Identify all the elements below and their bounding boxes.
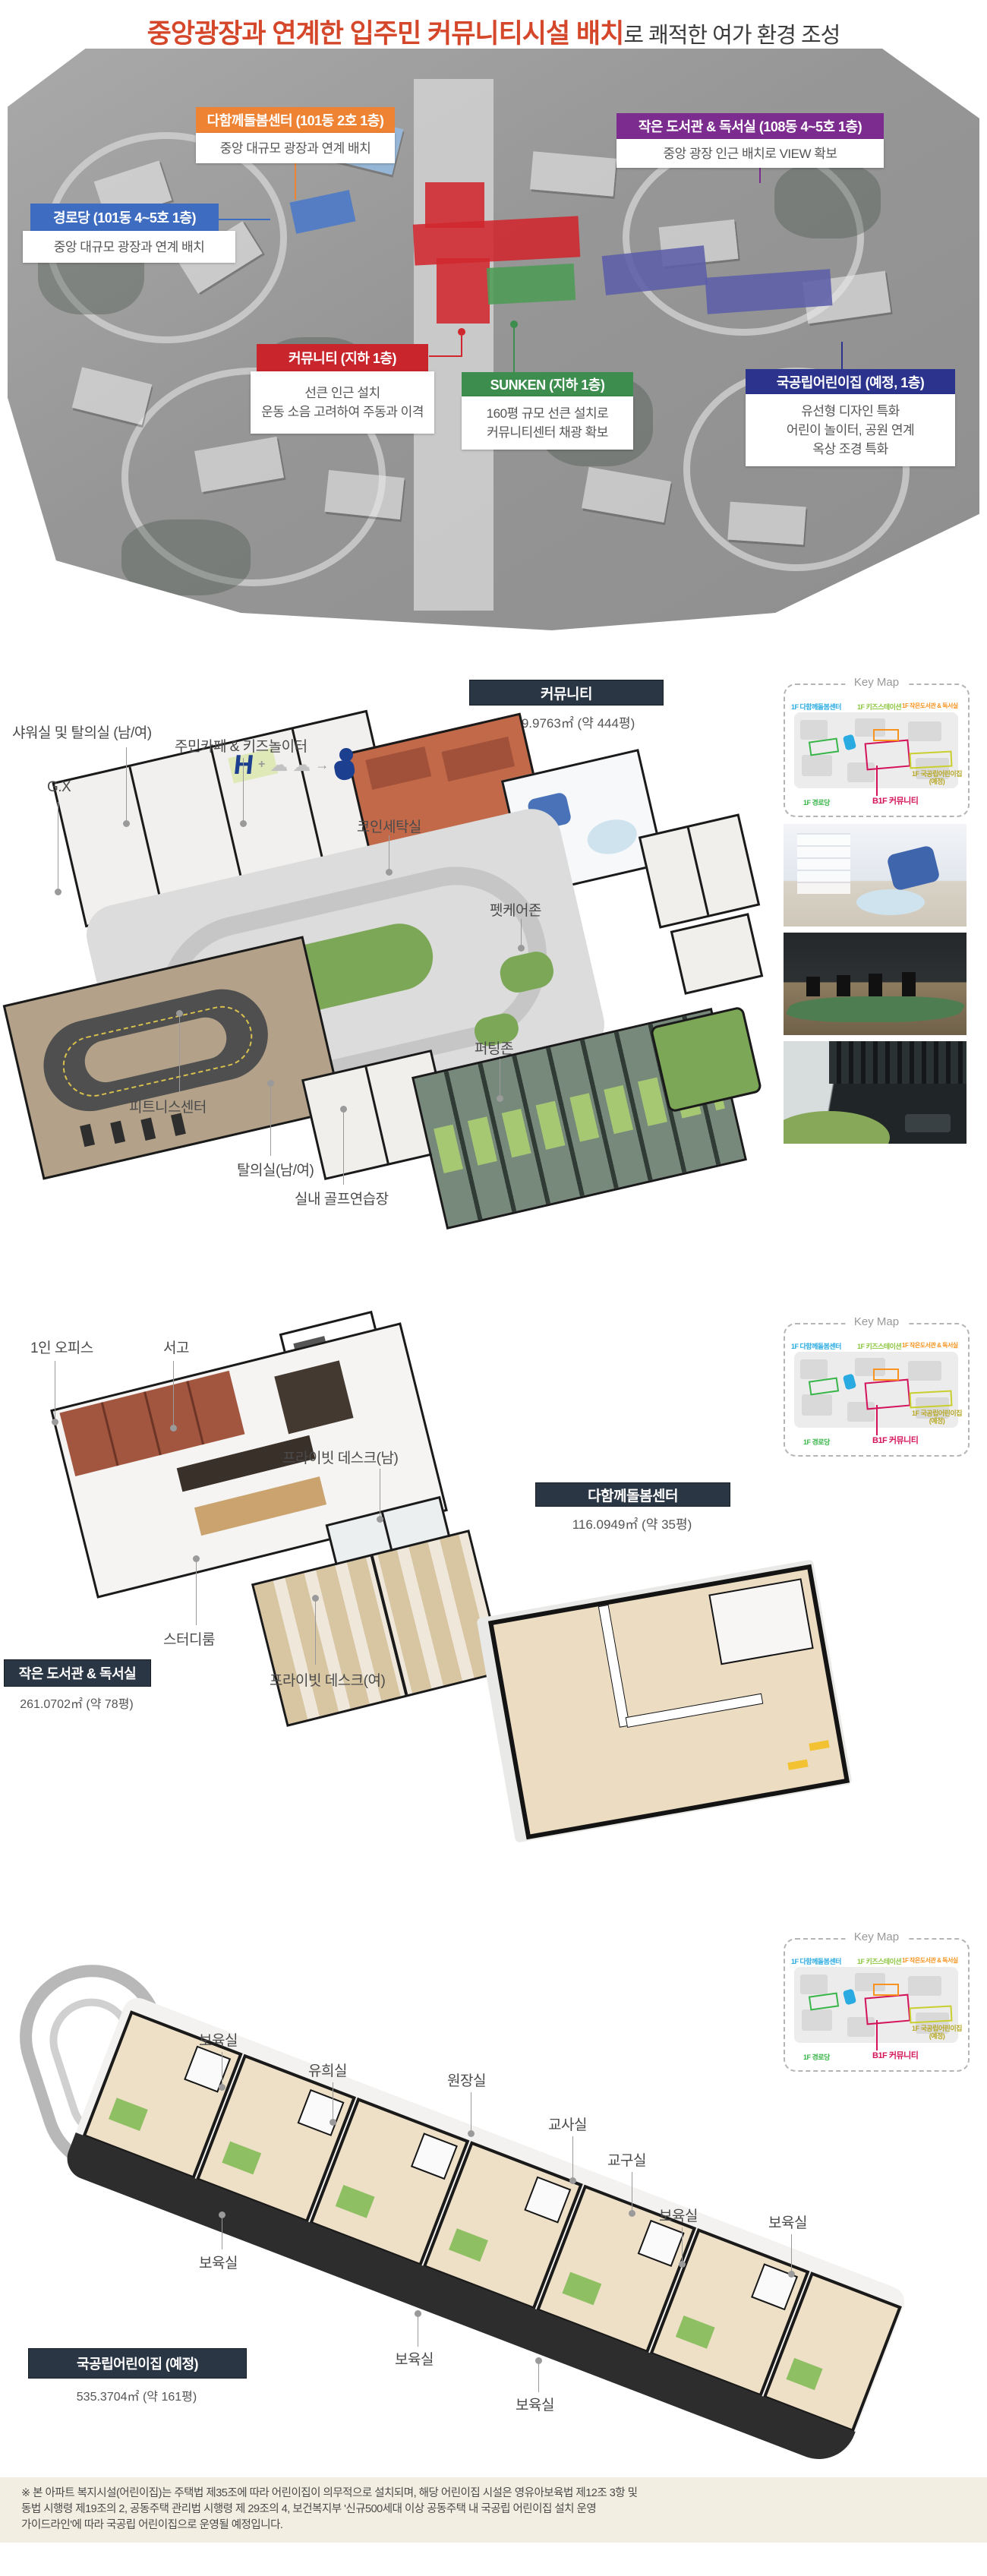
daycare-section-title: 국공립어린이집 (예정) — [28, 2348, 247, 2379]
callout-desc-line: 유선형 디자인 특화 — [801, 402, 900, 421]
connector-line — [295, 163, 296, 200]
leader-line — [471, 2092, 471, 2133]
footnote: ※ 본 아파트 복지시설(어린이집)는 주택법 제35조에 따라 어린이집이 의… — [0, 2477, 987, 2543]
photo-kids-playroom — [784, 824, 967, 927]
room-label: 실내 골프연습장 — [295, 1188, 389, 1208]
photo-indoor-golf — [784, 1041, 967, 1144]
room-label: 1인 오피스 — [30, 1337, 93, 1357]
wall-shape — [598, 1605, 630, 1728]
fitness-room-shape — [3, 936, 344, 1179]
table-shape — [194, 1476, 326, 1536]
keymap-label: B1F 커뮤니티 — [872, 794, 918, 807]
community-outline-shape — [865, 1379, 911, 1410]
leader-line — [55, 1361, 55, 1422]
leader-dot — [240, 820, 247, 827]
room-label: 서고 — [163, 1337, 189, 1357]
mat-shape — [562, 2272, 601, 2306]
callout-dolbom-desc: 중앙 대규모 광장과 연계 배치 — [196, 133, 395, 163]
building-shape — [582, 467, 671, 522]
room-label: 유희실 — [308, 2060, 347, 2080]
trees-shape — [774, 163, 881, 238]
wc-shape — [298, 2089, 345, 2136]
callout-sunken-desc: 160평 규모 선큰 설치로 커뮤니티센터 채광 확보 — [462, 396, 633, 450]
wall-shape — [364, 1067, 389, 1163]
care-center-area-text: 116.0949㎡ (약 35평) — [535, 1514, 729, 1533]
ceiling-slats-shape — [829, 1041, 967, 1084]
connector-line — [841, 342, 843, 369]
community-section-title: 커뮤니티 — [469, 680, 664, 706]
equipment-shape — [837, 975, 850, 996]
senior-outline-shape — [809, 737, 839, 756]
care-center-section-title: 다함께돌봄센터 — [535, 1482, 730, 1507]
wall-shape — [101, 1402, 119, 1466]
wc-shape — [638, 2220, 685, 2267]
keymap-leader-line — [876, 1405, 878, 1435]
keymap-label: 1F 국공립어린이집 (예정) — [909, 770, 965, 785]
room-label: 퍼팅존 — [475, 1037, 513, 1058]
room-label: 코인세탁실 — [357, 816, 421, 836]
keymap-label: 1F 키즈스테이션 — [857, 702, 901, 712]
mascot-character-icon — [333, 748, 356, 781]
keymap-label: 1F 다함께돌봄센터 — [791, 702, 841, 712]
keymap-title: Key Map — [845, 1315, 908, 1328]
keymap-label: 1F 작은도서관 & 독서실 — [902, 702, 958, 710]
leader-line — [222, 2218, 222, 2249]
leader-dot — [377, 1516, 383, 1523]
care-center-floorplan-illustration — [471, 1545, 858, 1845]
green-hill-shape — [784, 1111, 890, 1144]
page-root: 중앙광장과 연계한 입주민 커뮤니티시설 배치로 쾌적한 여가 환경 조성 — [0, 0, 987, 2576]
page-title: 중앙광장과 연계한 입주민 커뮤니티시설 배치로 쾌적한 여가 환경 조성 — [0, 12, 987, 51]
senior-highlight-shape — [290, 190, 356, 234]
room-label: G.X — [47, 779, 71, 796]
mat-shape — [449, 2228, 488, 2262]
shelf-shape — [441, 737, 515, 781]
library-outline-shape — [873, 1368, 899, 1381]
pool-shape — [584, 815, 640, 859]
building-shape — [727, 502, 806, 545]
leader-line — [682, 2227, 683, 2264]
library-area-text: 261.0702㎡ (약 78평) — [4, 1694, 150, 1712]
petcare-room-shape — [670, 913, 764, 995]
wc-shape — [411, 2132, 458, 2180]
wall-shape — [687, 828, 709, 916]
mat-shape — [786, 2358, 822, 2390]
room-label: 보육실 — [768, 2211, 807, 2232]
yellow-post-shape — [809, 1740, 829, 1750]
callout-desc-line: 중앙 대규모 광장과 연계 배치 — [54, 238, 205, 257]
leader-line — [389, 835, 389, 872]
mat-shape — [336, 2185, 375, 2218]
callout-library-desc: 중앙 광장 인근 배치로 VIEW 확보 — [616, 139, 884, 168]
community-highlight-shape — [437, 258, 490, 324]
cloud-icon: ☁ — [270, 754, 288, 776]
room-label: 교사실 — [548, 2114, 587, 2134]
keymap-label: 1F 경로당 — [803, 1437, 830, 1447]
callout-daycare-title: 국공립어린이집 (예정, 1층) — [746, 369, 955, 394]
shape — [800, 1359, 828, 1379]
keymap-label: 1F 키즈스테이션 — [857, 1341, 901, 1351]
equipment-shape — [140, 1118, 156, 1141]
shelf-shape — [365, 747, 431, 790]
leader-line — [243, 758, 244, 822]
connector-line — [219, 219, 270, 220]
leader-dot — [330, 2119, 336, 2126]
senior-outline-shape — [809, 1377, 839, 1395]
daycare-outline-shape — [909, 1391, 952, 1409]
room-label: 보육실 — [659, 2205, 698, 2225]
footnote-line: 가이드라인'에 따라 국공립 어린이집으로 운영될 예정입니다. — [21, 2518, 987, 2533]
wall-shape — [128, 767, 163, 908]
shape — [908, 721, 941, 741]
dolbom-outline-shape — [843, 1374, 856, 1391]
room-label: 보육실 — [395, 2348, 434, 2369]
room-label: 샤워실 및 탈의실 (남/여) — [12, 721, 152, 742]
leader-line — [538, 2363, 539, 2392]
leader-line — [380, 1469, 380, 1519]
leader-line — [270, 1086, 271, 1156]
callout-desc-line: 중앙 광장 인근 배치로 VIEW 확보 — [663, 144, 837, 163]
inner-room-shape — [708, 1578, 813, 1665]
leader-dot — [569, 2177, 576, 2184]
room-label: 프라이빗 데스크(남) — [282, 1447, 398, 1467]
leader-line — [632, 2172, 632, 2213]
callout-sunken-title: SUNKEN (지하 1층) — [462, 372, 633, 396]
leader-dot — [386, 869, 393, 876]
leader-dot — [788, 2271, 795, 2278]
trees-shape — [121, 519, 251, 595]
leader-dot — [497, 1095, 503, 1102]
photo-fitness-center — [784, 933, 967, 1035]
mat-shape — [676, 2316, 715, 2349]
leader-line — [196, 1561, 197, 1625]
callout-library-title: 작은 도서관 & 독서실 (108동 4~5호 1층) — [616, 113, 884, 139]
page-title-highlight: 중앙광장과 연계한 입주민 커뮤니티시설 배치 — [147, 19, 624, 49]
room-label: 프라이빗 데스크(여) — [270, 1669, 385, 1690]
wall-shape — [626, 1694, 764, 1728]
leader-line — [315, 1601, 316, 1665]
leader-line — [343, 1112, 344, 1185]
keymap-label: 1F 경로당 — [803, 797, 830, 807]
yellow-post-shape — [787, 1760, 808, 1770]
slide-shape — [886, 844, 941, 892]
wall-shape — [186, 1381, 204, 1444]
callout-desc-line: 160평 규모 선큰 설치로 — [487, 404, 609, 423]
arrow-icon: → — [315, 757, 329, 773]
leader-dot — [468, 2130, 475, 2137]
track-shape — [784, 996, 967, 1022]
keymap: Key Map 1F 다함께돌봄센터 1F 키즈스테이션 1F 작은도서관 & … — [784, 683, 970, 817]
connector-line — [461, 336, 462, 357]
footnote-line: ※ 본 아파트 복지시설(어린이집)는 주택법 제35조에 따라 어린이집이 의… — [21, 2486, 987, 2502]
building-shape — [324, 470, 404, 519]
plus-sign: + — [258, 758, 265, 772]
callout-desc-line: 어린이 놀이터, 공원 연계 — [787, 421, 914, 440]
callout-daycare-desc: 유선형 디자인 특화 어린이 놀이터, 공원 연계 옥상 조경 특화 — [746, 394, 955, 466]
room-label: 피트니스센터 — [129, 1096, 207, 1116]
room-label: 주민카페 & 키즈놀이터 — [175, 735, 307, 756]
room-label: 펫케어존 — [490, 899, 541, 920]
community-outline-shape — [865, 740, 911, 771]
leader-dot — [518, 945, 525, 952]
leader-line — [572, 2136, 573, 2180]
seating-shape — [905, 1114, 951, 1132]
leader-dot — [123, 820, 130, 827]
keymap-label: 1F 국공립어린이집 (예정) — [909, 1410, 965, 1425]
building-shape — [72, 367, 152, 425]
room-label: 보육실 — [199, 2029, 238, 2050]
connector-dot — [510, 320, 518, 328]
leader-line — [179, 1016, 180, 1092]
shape — [802, 1394, 832, 1416]
footnote-line: 동법 시행령 제19조의 2, 공동주택 관리법 시행령 제 29조의 4, 보… — [21, 2502, 987, 2518]
leader-line — [791, 2234, 792, 2274]
equipment-shape — [869, 974, 882, 996]
keymap-leader-line — [876, 766, 878, 796]
equipment-shape — [902, 972, 916, 996]
leader-line — [126, 747, 127, 822]
room-label: 원장실 — [447, 2069, 486, 2090]
leader-line — [500, 1059, 500, 1098]
connector-line — [513, 327, 515, 372]
shape — [800, 720, 828, 740]
library-section-title: 작은 도서관 & 독서실 — [4, 1659, 151, 1687]
keymap-label: 1F 작은도서관 & 독서실 — [902, 1341, 958, 1350]
bookshelf-shape — [274, 1360, 353, 1434]
equipment-shape — [80, 1124, 95, 1147]
room-label: 탈의실(남/여) — [237, 1159, 314, 1179]
community-highlight-shape — [425, 182, 484, 228]
leader-line — [521, 919, 522, 948]
callout-community-title: 커뮤니티 (지하 1층) — [257, 344, 428, 371]
callout-desc-line: 커뮤니티센터 채광 확보 — [487, 423, 608, 442]
equipment-shape — [110, 1121, 125, 1144]
leader-line — [173, 1361, 174, 1428]
keymap-label: B1F 커뮤니티 — [872, 1434, 918, 1446]
leader-dot — [629, 2210, 635, 2217]
room-label: 교구실 — [607, 2149, 646, 2170]
leader-line — [418, 2316, 418, 2347]
mat-shape — [222, 2142, 261, 2175]
shape — [802, 755, 832, 776]
community-floorplan-illustration — [11, 718, 763, 1234]
leader-dot — [679, 2261, 686, 2268]
callout-desc-line: 옥상 조경 특화 — [812, 440, 888, 459]
leader-dot — [55, 889, 61, 895]
daycare-area-text: 535.3704㎡ (약 161평) — [28, 2386, 245, 2404]
connector-dot — [458, 328, 465, 336]
shape — [333, 759, 356, 781]
callout-desc-line: 운동 소음 고려하여 주동과 이격 — [261, 402, 424, 421]
keymap: Key Map 1F 다함께돌봄센터 1F 키즈스테이션 1F 작은도서관 & … — [784, 1323, 970, 1457]
callout-desc-line: 선큰 인근 설치 — [304, 384, 380, 402]
shape — [908, 1361, 941, 1381]
pool-shape — [856, 889, 925, 915]
callout-dolbom-title: 다함께돌봄센터 (101동 2호 1층) — [196, 107, 395, 133]
mat-shape — [109, 2098, 148, 2131]
keymap-title: Key Map — [845, 676, 908, 689]
connector-line — [429, 355, 462, 357]
wc-shape — [524, 2177, 571, 2224]
room-label: 스터디룸 — [163, 1628, 215, 1649]
shape — [797, 833, 850, 894]
reading-room-shape — [251, 1529, 505, 1727]
wall-shape — [143, 1391, 162, 1455]
equipment-shape — [171, 1113, 186, 1135]
leader-line — [333, 2082, 333, 2122]
callout-senior-desc: 중앙 대규모 광장과 연계 배치 — [23, 231, 235, 263]
callout-community-desc: 선큰 인근 설치 운동 소음 고려하여 주동과 이격 — [251, 371, 434, 434]
room-label: 보육실 — [516, 2394, 554, 2414]
sunken-highlight-shape — [487, 264, 575, 305]
leader-dot — [52, 1419, 58, 1425]
keymap-label: 1F 다함께돌봄센터 — [791, 1341, 841, 1351]
daycare-outline-shape — [909, 751, 952, 769]
cloud-icon: ☁ — [292, 754, 311, 776]
room-label: 보육실 — [199, 2252, 238, 2272]
building-shape — [530, 151, 616, 196]
leader-dot — [219, 2084, 225, 2091]
leader-line — [58, 802, 58, 892]
leader-dot — [170, 1425, 177, 1432]
leader-line — [222, 2052, 222, 2087]
callout-senior-title: 경로당 (101동 4~5호 1층) — [30, 204, 219, 231]
library-outline-shape — [873, 729, 899, 741]
dolbom-outline-shape — [843, 734, 856, 751]
keymap-title: Key Map — [845, 1930, 908, 1943]
page-title-rest: 로 쾌적한 여가 환경 조성 — [623, 24, 840, 48]
care-room-shape — [488, 1564, 850, 1840]
callout-desc-line: 중앙 대규모 광장과 연계 배치 — [220, 139, 371, 158]
equipment-shape — [806, 977, 820, 996]
